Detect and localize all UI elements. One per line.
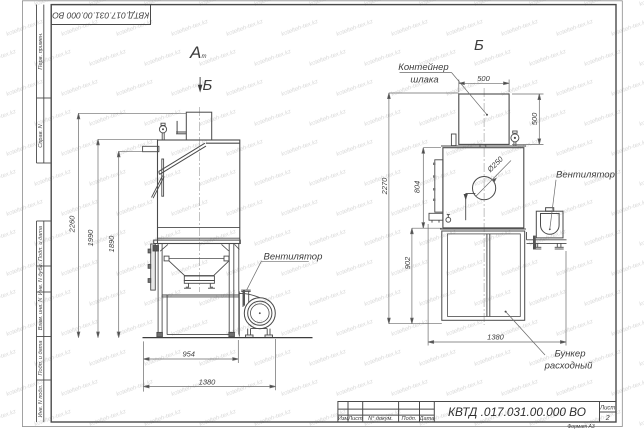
svg-text:kotelteh-tex.kz: kotelteh-tex.kz (446, 19, 484, 38)
svg-text:КВТД .017.031.00.000 ВО: КВТД .017.031.00.000 ВО (448, 405, 586, 419)
svg-text:kotelteh-tex.kz: kotelteh-tex.kz (6, 199, 44, 218)
svg-text:Подп.: Подп. (402, 416, 417, 422)
svg-text:kotelteh-tex.kz: kotelteh-tex.kz (556, 139, 594, 158)
svg-text:1380: 1380 (487, 333, 505, 342)
svg-text:kotelteh-tex.kz: kotelteh-tex.kz (639, 49, 644, 68)
svg-text:kotelteh-tex.kz: kotelteh-tex.kz (89, 409, 127, 428)
svg-text:kotelteh-tex.kz: kotelteh-tex.kz (309, 289, 347, 308)
svg-text:kotelteh-tex.kz: kotelteh-tex.kz (529, 289, 567, 308)
svg-text:954: 954 (182, 350, 195, 359)
svg-text:kotelteh-tex.kz: kotelteh-tex.kz (364, 349, 402, 368)
svg-text:kotelteh-tex.kz: kotelteh-tex.kz (336, 79, 374, 98)
svg-text:kotelteh-tex.kz: kotelteh-tex.kz (116, 199, 154, 218)
svg-text:kotelteh-tex.kz: kotelteh-tex.kz (116, 79, 154, 98)
svg-text:kotelteh-tex.kz: kotelteh-tex.kz (391, 379, 429, 398)
svg-text:kotelteh-tex.kz: kotelteh-tex.kz (144, 409, 182, 428)
svg-text:kotelteh-tex.kz: kotelteh-tex.kz (0, 289, 17, 308)
svg-text:Изм: Изм (338, 416, 349, 422)
svg-text:2270: 2270 (380, 177, 389, 196)
svg-text:kotelteh-tex.kz: kotelteh-tex.kz (446, 319, 484, 338)
svg-text:kotelteh-tex.kz: kotelteh-tex.kz (116, 319, 154, 338)
svg-text:kotelteh-tex.kz: kotelteh-tex.kz (474, 289, 512, 308)
svg-text:kotelteh-tex.kz: kotelteh-tex.kz (556, 79, 594, 98)
svg-text:kotelteh-tex.kz: kotelteh-tex.kz (501, 259, 539, 278)
svg-text:Инв. N подл.: Инв. N подл. (38, 385, 44, 418)
svg-text:kotelteh-tex.kz: kotelteh-tex.kz (281, 79, 319, 98)
svg-text:kotelteh-tex.kz: kotelteh-tex.kz (199, 349, 237, 368)
svg-text:kotelteh-tex.kz: kotelteh-tex.kz (474, 229, 512, 248)
svg-text:500: 500 (530, 112, 539, 125)
svg-text:kotelteh-tex.kz: kotelteh-tex.kz (61, 199, 99, 218)
svg-text:kotelteh-tex.kz: kotelteh-tex.kz (474, 109, 512, 128)
svg-text:kotelteh-tex.kz: kotelteh-tex.kz (281, 19, 319, 38)
svg-text:kotelteh-tex.kz: kotelteh-tex.kz (144, 289, 182, 308)
svg-text:kotelteh-tex.kz: kotelteh-tex.kz (226, 379, 264, 398)
svg-text:902: 902 (403, 256, 412, 269)
svg-text:kotelteh-tex.kz: kotelteh-tex.kz (501, 19, 539, 38)
svg-text:kotelteh-tex.kz: kotelteh-tex.kz (116, 139, 154, 158)
svg-text:kotelteh-tex.kz: kotelteh-tex.kz (391, 319, 429, 338)
svg-text:kotelteh-tex.kz: kotelteh-tex.kz (34, 169, 72, 188)
svg-text:kotelteh-tex.kz: kotelteh-tex.kz (144, 49, 182, 68)
svg-text:kotelteh-tex.kz: kotelteh-tex.kz (446, 379, 484, 398)
svg-text:Б: Б (203, 77, 213, 94)
svg-text:kotelteh-tex.kz: kotelteh-tex.kz (639, 349, 644, 368)
svg-text:kotelteh-tex.kz: kotelteh-tex.kz (0, 109, 17, 128)
svg-text:kotelteh-tex.kz: kotelteh-tex.kz (474, 349, 512, 368)
svg-text:2260: 2260 (68, 215, 77, 234)
svg-text:kotelteh-tex.kz: kotelteh-tex.kz (61, 19, 99, 38)
svg-text:kotelteh-tex.kz: kotelteh-tex.kz (446, 199, 484, 218)
svg-text:kotelteh-tex.kz: kotelteh-tex.kz (639, 169, 644, 188)
svg-text:kotelteh-tex.kz: kotelteh-tex.kz (254, 49, 292, 68)
svg-text:т: т (202, 54, 207, 60)
svg-text:kotelteh-tex.kz: kotelteh-tex.kz (89, 49, 127, 68)
svg-text:kotelteh-tex.kz: kotelteh-tex.kz (446, 259, 484, 278)
svg-text:kotelteh-tex.kz: kotelteh-tex.kz (419, 289, 457, 308)
svg-text:КВТД.017.031.00.000 ВО: КВТД.017.031.00.000 ВО (52, 10, 149, 20)
svg-text:Б: Б (474, 37, 484, 54)
svg-text:kotelteh-tex.kz: kotelteh-tex.kz (171, 19, 209, 38)
svg-text:kotelteh-tex.kz: kotelteh-tex.kz (309, 109, 347, 128)
svg-text:kotelteh-tex.kz: kotelteh-tex.kz (364, 109, 402, 128)
svg-text:500: 500 (477, 74, 490, 83)
svg-text:kotelteh-tex.kz: kotelteh-tex.kz (199, 289, 237, 308)
svg-text:kotelteh-tex.kz: kotelteh-tex.kz (281, 199, 319, 218)
svg-text:kotelteh-tex.kz: kotelteh-tex.kz (391, 19, 429, 38)
svg-text:kotelteh-tex.kz: kotelteh-tex.kz (171, 139, 209, 158)
svg-text:шлака: шлака (410, 75, 438, 86)
svg-text:kotelteh-tex.kz: kotelteh-tex.kz (501, 379, 539, 398)
svg-text:kotelteh-tex.kz: kotelteh-tex.kz (254, 409, 292, 428)
svg-text:Контейнер: Контейнер (398, 62, 448, 73)
svg-text:kotelteh-tex.kz: kotelteh-tex.kz (419, 169, 457, 188)
svg-text:kotelteh-tex.kz: kotelteh-tex.kz (226, 79, 264, 98)
svg-text:Справ. N: Справ. N (38, 123, 44, 147)
svg-text:kotelteh-tex.kz: kotelteh-tex.kz (0, 49, 17, 68)
svg-text:kotelteh-tex.kz: kotelteh-tex.kz (89, 349, 127, 368)
svg-text:kotelteh-tex.kz: kotelteh-tex.kz (281, 379, 319, 398)
svg-text:kotelteh-tex.kz: kotelteh-tex.kz (501, 139, 539, 158)
svg-text:kotelteh-tex.kz: kotelteh-tex.kz (6, 79, 44, 98)
svg-text:kotelteh-tex.kz: kotelteh-tex.kz (226, 139, 264, 158)
svg-text:kotelteh-tex.kz: kotelteh-tex.kz (556, 379, 594, 398)
svg-text:Вентилятор: Вентилятор (264, 252, 323, 263)
svg-text:kotelteh-tex.kz: kotelteh-tex.kz (336, 139, 374, 158)
svg-text:kotelteh-tex.kz: kotelteh-tex.kz (639, 109, 644, 128)
svg-text:kotelteh-tex.kz: kotelteh-tex.kz (254, 229, 292, 248)
svg-text:kotelteh-tex.kz: kotelteh-tex.kz (556, 199, 594, 218)
svg-text:kotelteh-tex.kz: kotelteh-tex.kz (639, 229, 644, 248)
svg-text:kotelteh-tex.kz: kotelteh-tex.kz (0, 349, 17, 368)
svg-text:Формат А3: Формат А3 (567, 424, 595, 430)
svg-text:kotelteh-tex.kz: kotelteh-tex.kz (364, 229, 402, 248)
svg-text:kotelteh-tex.kz: kotelteh-tex.kz (419, 349, 457, 368)
svg-text:2: 2 (605, 415, 610, 422)
svg-text:kotelteh-tex.kz: kotelteh-tex.kz (226, 199, 264, 218)
svg-text:kotelteh-tex.kz: kotelteh-tex.kz (336, 19, 374, 38)
svg-text:Подп. и дата: Подп. и дата (38, 340, 44, 375)
svg-text:kotelteh-tex.kz: kotelteh-tex.kz (419, 229, 457, 248)
svg-text:kotelteh-tex.kz: kotelteh-tex.kz (639, 0, 644, 8)
svg-text:Перв. примен.: Перв. примен. (38, 32, 44, 69)
svg-text:kotelteh-tex.kz: kotelteh-tex.kz (61, 319, 99, 338)
svg-text:kotelteh-tex.kz: kotelteh-tex.kz (0, 0, 17, 8)
svg-text:kotelteh-tex.kz: kotelteh-tex.kz (501, 79, 539, 98)
svg-text:kotelteh-tex.kz: kotelteh-tex.kz (336, 199, 374, 218)
svg-text:kotelteh-tex.kz: kotelteh-tex.kz (199, 409, 237, 428)
svg-text:kotelteh-tex.kz: kotelteh-tex.kz (61, 259, 99, 278)
svg-text:804: 804 (413, 181, 422, 194)
svg-text:kotelteh-tex.kz: kotelteh-tex.kz (281, 139, 319, 158)
svg-text:Бункер: Бункер (554, 349, 585, 360)
svg-text:kotelteh-tex.kz: kotelteh-tex.kz (89, 109, 127, 128)
svg-text:kotelteh-tex.kz: kotelteh-tex.kz (61, 379, 99, 398)
svg-text:kotelteh-tex.kz: kotelteh-tex.kz (281, 319, 319, 338)
svg-text:kotelteh-tex.kz: kotelteh-tex.kz (336, 379, 374, 398)
svg-text:kotelteh-tex.kz: kotelteh-tex.kz (336, 259, 374, 278)
svg-text:1990: 1990 (86, 229, 95, 247)
svg-text:kotelteh-tex.kz: kotelteh-tex.kz (556, 319, 594, 338)
svg-text:kotelteh-tex.kz: kotelteh-tex.kz (226, 19, 264, 38)
svg-text:kotelteh-tex.kz: kotelteh-tex.kz (116, 379, 154, 398)
svg-text:Взам. инв. N: Взам. инв. N (38, 297, 44, 331)
svg-text:kotelteh-tex.kz: kotelteh-tex.kz (364, 289, 402, 308)
svg-text:kotelteh-tex.kz: kotelteh-tex.kz (529, 49, 567, 68)
svg-text:Инв. N дубл.: Инв. N дубл. (38, 263, 44, 295)
svg-text:А: А (189, 43, 201, 62)
svg-text:kotelteh-tex.kz: kotelteh-tex.kz (254, 169, 292, 188)
svg-text:kotelteh-tex.kz: kotelteh-tex.kz (309, 229, 347, 248)
svg-text:kotelteh-tex.kz: kotelteh-tex.kz (309, 49, 347, 68)
svg-text:kotelteh-tex.kz: kotelteh-tex.kz (89, 169, 127, 188)
svg-text:1890: 1890 (107, 235, 116, 253)
svg-text:kotelteh-tex.kz: kotelteh-tex.kz (226, 259, 264, 278)
svg-text:kotelteh-tex.kz: kotelteh-tex.kz (61, 79, 99, 98)
svg-text:N° докум.: N° докум. (368, 416, 393, 422)
svg-text:kotelteh-tex.kz: kotelteh-tex.kz (0, 409, 17, 428)
svg-text:kotelteh-tex.kz: kotelteh-tex.kz (254, 349, 292, 368)
svg-text:kotelteh-tex.kz: kotelteh-tex.kz (116, 19, 154, 38)
svg-text:kotelteh-tex.kz: kotelteh-tex.kz (336, 319, 374, 338)
svg-text:kotelteh-tex.kz: kotelteh-tex.kz (639, 289, 644, 308)
svg-text:kotelteh-tex.kz: kotelteh-tex.kz (61, 139, 99, 158)
svg-text:Подп. и дата: Подп. и дата (38, 226, 44, 261)
svg-text:kotelteh-tex.kz: kotelteh-tex.kz (0, 169, 17, 188)
svg-text:kotelteh-tex.kz: kotelteh-tex.kz (556, 19, 594, 38)
svg-text:kotelteh-tex.kz: kotelteh-tex.kz (171, 199, 209, 218)
svg-text:kotelteh-tex.kz: kotelteh-tex.kz (501, 199, 539, 218)
svg-text:kotelteh-tex.kz: kotelteh-tex.kz (309, 349, 347, 368)
svg-text:Лист: Лист (599, 406, 615, 412)
svg-text:kotelteh-tex.kz: kotelteh-tex.kz (639, 409, 644, 428)
svg-text:kotelteh-tex.kz: kotelteh-tex.kz (199, 169, 237, 188)
svg-text:kotelteh-tex.kz: kotelteh-tex.kz (419, 109, 457, 128)
svg-text:kotelteh-tex.kz: kotelteh-tex.kz (309, 169, 347, 188)
svg-text:расходный: расходный (544, 361, 594, 372)
svg-text:kotelteh-tex.kz: kotelteh-tex.kz (364, 49, 402, 68)
svg-text:kotelteh-tex.kz: kotelteh-tex.kz (501, 319, 539, 338)
svg-text:Вентилятор: Вентилятор (556, 170, 615, 181)
svg-text:kotelteh-tex.kz: kotelteh-tex.kz (556, 259, 594, 278)
svg-text:Дата: Дата (419, 416, 435, 422)
svg-text:kotelteh-tex.kz: kotelteh-tex.kz (89, 289, 127, 308)
svg-text:1380: 1380 (199, 377, 217, 386)
svg-text:kotelteh-tex.kz: kotelteh-tex.kz (0, 229, 17, 248)
svg-text:Лист: Лист (347, 416, 363, 422)
svg-text:kotelteh-tex.kz: kotelteh-tex.kz (254, 109, 292, 128)
